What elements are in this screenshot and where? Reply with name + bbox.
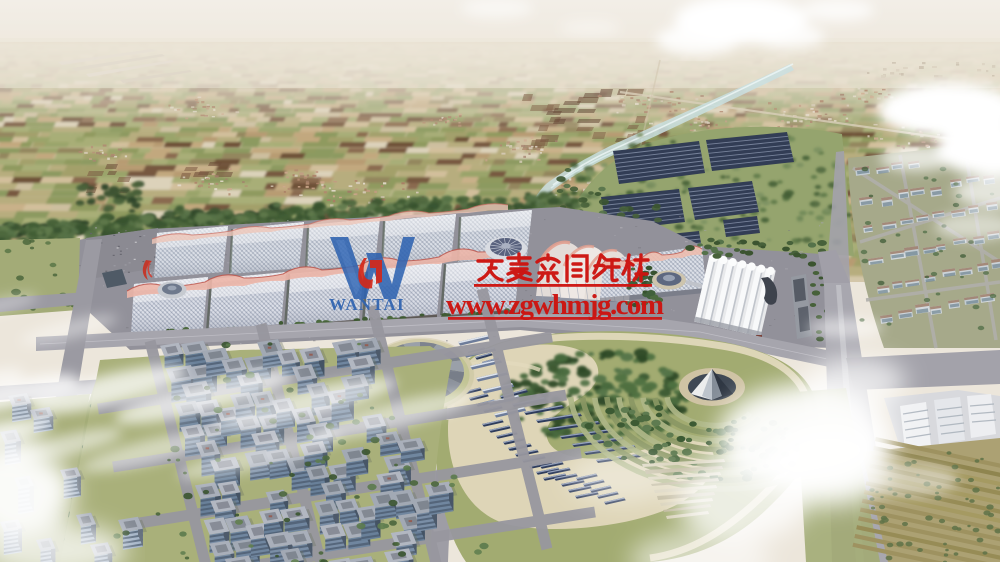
svg-text:www.zgwhmjg.com: www.zgwhmjg.com [446, 289, 664, 321]
svg-text:WANTAI: WANTAI [329, 295, 405, 314]
